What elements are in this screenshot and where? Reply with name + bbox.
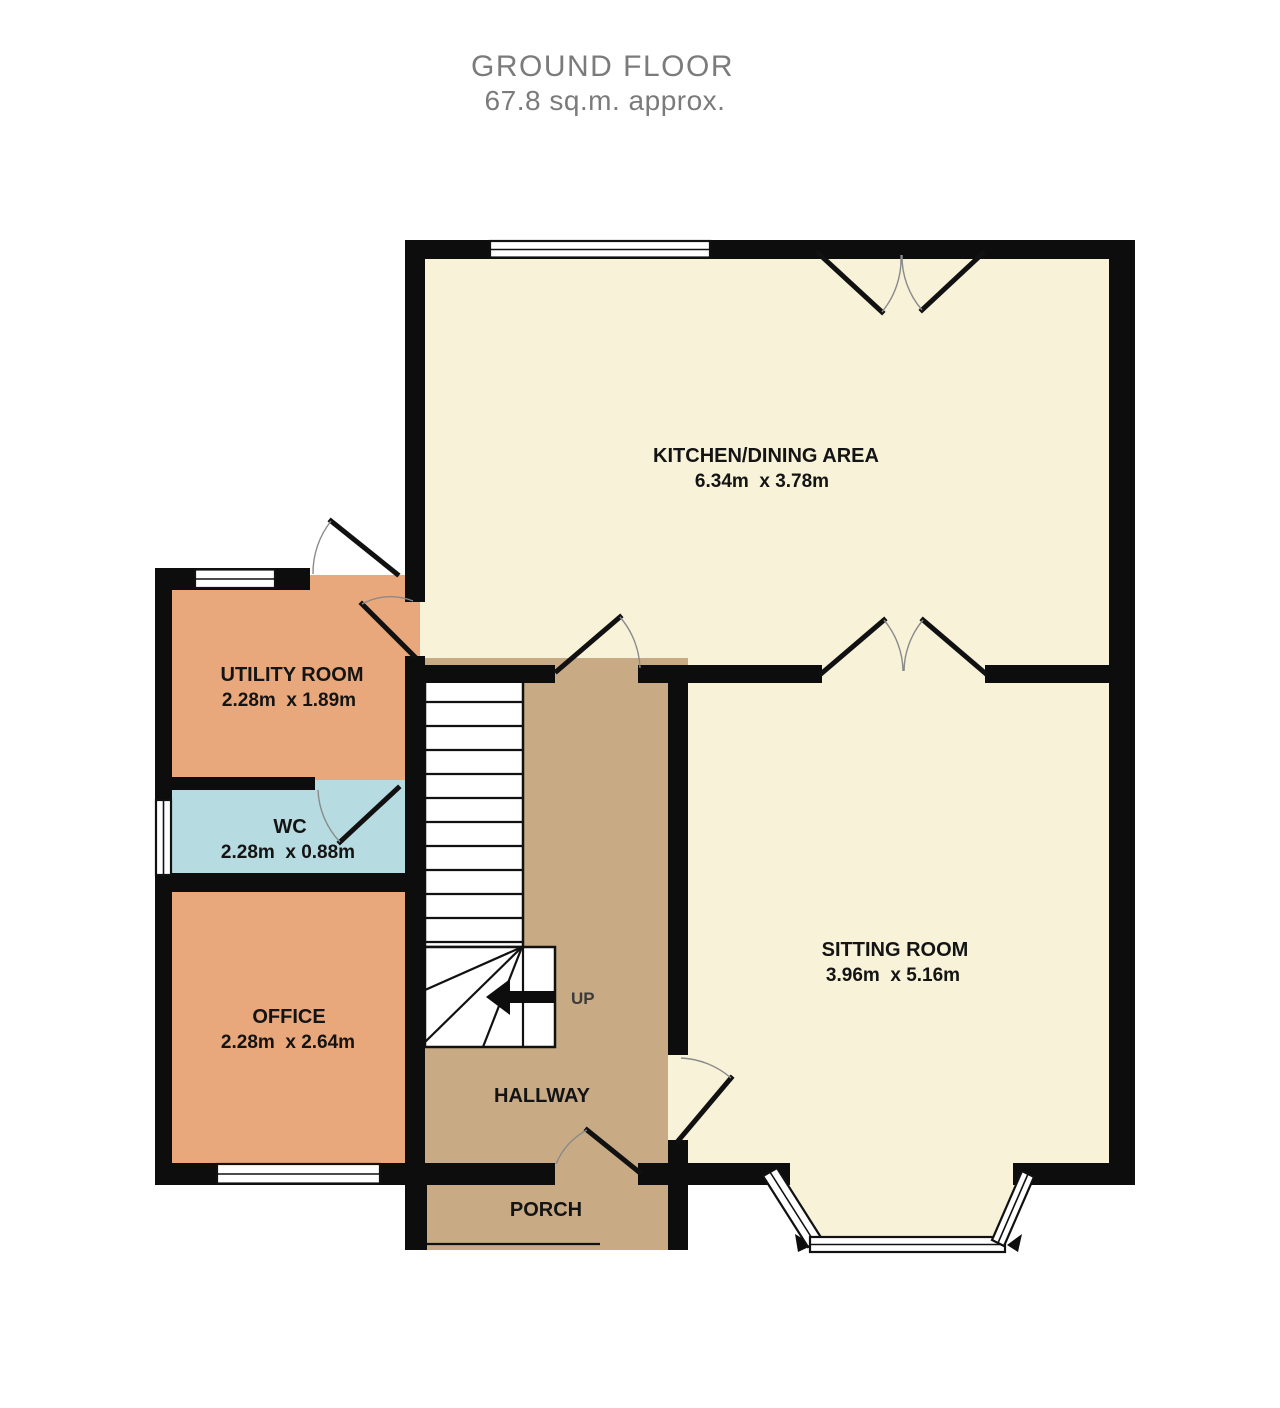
wall-segment [405, 240, 425, 602]
wall-segment [405, 1163, 427, 1250]
utility-window [195, 570, 275, 589]
stair-run [425, 678, 523, 947]
sitting-room-label: SITTING ROOM [822, 939, 969, 961]
bay-window-bottom [810, 1237, 1005, 1252]
kitchen-label: KITCHEN/DINING AREA [653, 445, 879, 467]
office-dimensions: 2.28m x 2.64m [221, 1032, 355, 1053]
wall-segment [405, 656, 425, 1163]
kitchen-window [490, 241, 710, 258]
hallway-label: HALLWAY [494, 1085, 591, 1107]
porch-label: PORCH [510, 1199, 582, 1221]
wall-segment [668, 1140, 688, 1250]
wall-segment [668, 665, 688, 1055]
wc-side-window [156, 800, 171, 875]
wc-label: WC [273, 816, 306, 838]
wall-segment [1109, 240, 1135, 1185]
office-window [217, 1164, 380, 1184]
wall-segment [155, 873, 425, 892]
utility-exterior-door [313, 521, 397, 574]
utility-room-label: UTILITY ROOM [221, 664, 364, 686]
wall-segment [160, 777, 315, 790]
bay-corner-wall [1007, 1234, 1022, 1252]
utility-room-dimensions: 2.28m x 1.89m [222, 690, 356, 711]
wall-segment [985, 665, 1135, 683]
wc-dimensions: 2.28m x 0.88m [221, 842, 355, 863]
sitting-room-dimensions: 3.96m x 5.16m [826, 965, 960, 986]
floorplan-drawing: UP [0, 0, 1280, 1408]
wall-segment [415, 665, 555, 683]
kitchen-dimensions: 6.34m x 3.78m [695, 471, 829, 492]
stairs-direction-label: UP [571, 989, 595, 1008]
wall-segment [638, 665, 822, 683]
office-label: OFFICE [252, 1006, 325, 1028]
floorplan-page: GROUND FLOOR 67.8 sq.m. approx. [0, 0, 1280, 1408]
